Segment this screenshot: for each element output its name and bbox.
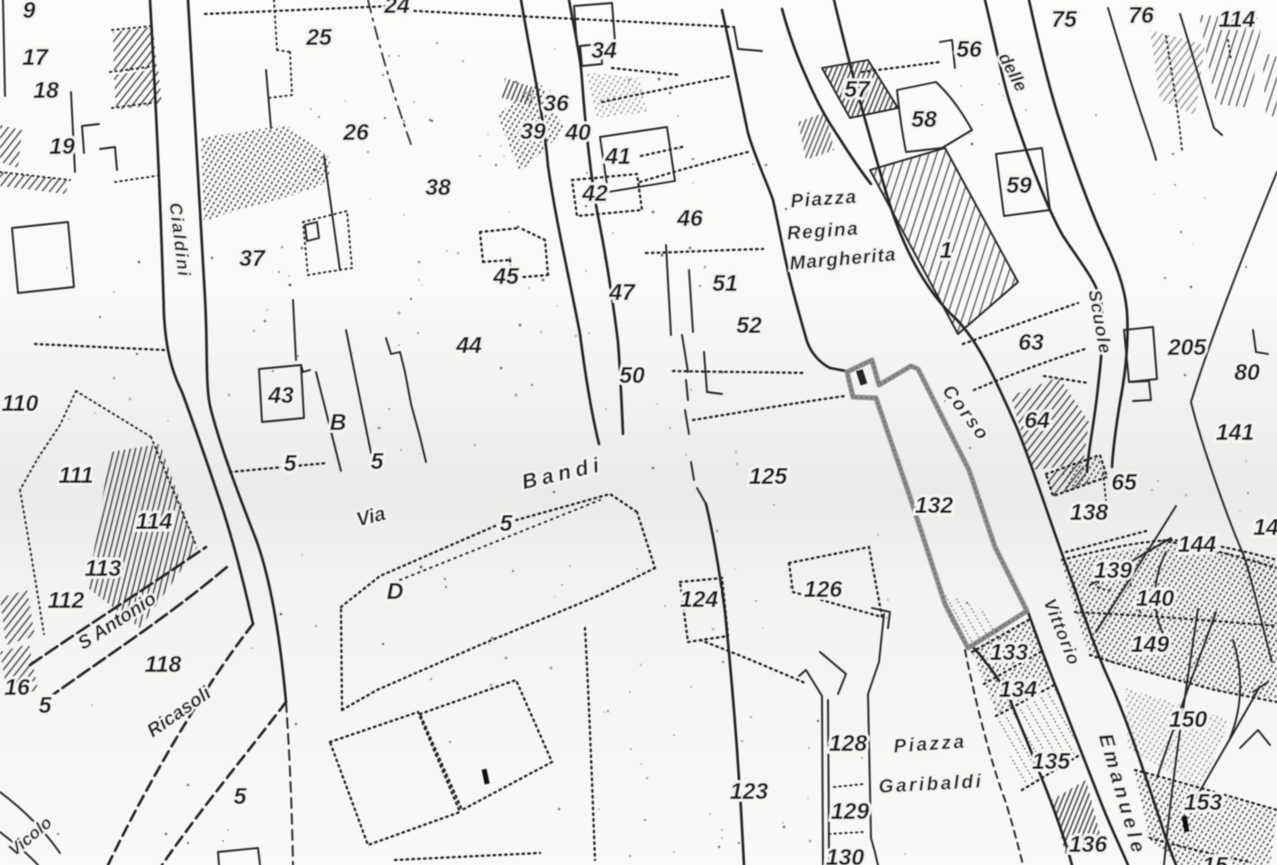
svg-text:140: 140: [1136, 585, 1175, 611]
svg-text:76: 76: [1128, 2, 1154, 28]
svg-text:135: 135: [1032, 748, 1072, 774]
svg-text:42: 42: [581, 180, 608, 206]
svg-text:58: 58: [911, 106, 937, 132]
svg-text:18: 18: [33, 77, 59, 103]
svg-text:5: 5: [234, 783, 248, 809]
svg-text:149: 149: [1131, 631, 1170, 657]
svg-text:113: 113: [85, 555, 122, 581]
svg-text:57: 57: [844, 76, 871, 102]
svg-text:153: 153: [1184, 789, 1223, 815]
svg-text:45: 45: [492, 263, 520, 289]
svg-text:15: 15: [1202, 852, 1229, 865]
svg-text:111: 111: [59, 462, 94, 488]
svg-text:36: 36: [543, 90, 569, 116]
svg-text:80: 80: [1234, 359, 1260, 385]
svg-text:38: 38: [425, 174, 451, 200]
svg-text:130: 130: [826, 844, 865, 865]
svg-text:63: 63: [1018, 329, 1044, 355]
svg-text:125: 125: [749, 463, 789, 489]
svg-text:37: 37: [239, 245, 266, 271]
svg-text:129: 129: [831, 798, 870, 824]
svg-text:136: 136: [1069, 831, 1108, 857]
svg-text:1: 1: [940, 237, 953, 263]
svg-text:132: 132: [915, 492, 954, 518]
svg-text:134: 134: [999, 676, 1038, 702]
svg-text:39: 39: [520, 118, 546, 144]
svg-text:110: 110: [2, 390, 39, 416]
svg-text:75: 75: [1051, 6, 1078, 32]
svg-text:17: 17: [22, 44, 49, 70]
svg-text:126: 126: [804, 576, 843, 602]
svg-text:B: B: [330, 409, 347, 435]
svg-text:41: 41: [604, 143, 631, 169]
svg-text:D: D: [387, 578, 404, 604]
svg-text:5: 5: [371, 448, 385, 474]
svg-text:128: 128: [829, 730, 868, 756]
svg-text:24: 24: [383, 0, 410, 18]
svg-text:25: 25: [305, 24, 333, 50]
svg-text:123: 123: [730, 778, 769, 804]
svg-text:47: 47: [608, 279, 636, 305]
svg-text:205: 205: [1167, 334, 1208, 360]
svg-text:112: 112: [48, 587, 85, 613]
svg-text:5: 5: [39, 692, 53, 718]
svg-text:50: 50: [619, 362, 645, 388]
svg-text:114: 114: [136, 508, 173, 534]
svg-text:139: 139: [1094, 557, 1133, 583]
svg-text:65: 65: [1111, 469, 1138, 495]
svg-text:59: 59: [1006, 172, 1032, 198]
svg-text:118: 118: [145, 651, 182, 677]
svg-text:144: 144: [1178, 531, 1217, 557]
svg-text:64: 64: [1024, 407, 1050, 433]
svg-text:141: 141: [1216, 419, 1254, 445]
svg-text:133: 133: [990, 639, 1029, 665]
svg-text:19: 19: [49, 133, 75, 159]
svg-text:51: 51: [712, 270, 738, 296]
svg-text:5: 5: [500, 510, 514, 536]
svg-text:34: 34: [591, 37, 617, 63]
svg-text:43: 43: [267, 382, 294, 408]
svg-text:14: 14: [1253, 514, 1277, 540]
svg-text:5: 5: [284, 450, 298, 476]
svg-text:44: 44: [455, 332, 482, 358]
svg-text:138: 138: [1070, 499, 1109, 525]
svg-text:26: 26: [342, 119, 369, 145]
svg-text:56: 56: [956, 36, 982, 62]
svg-text:40: 40: [564, 119, 591, 145]
svg-text:114: 114: [1219, 6, 1256, 32]
svg-text:16: 16: [4, 674, 30, 700]
svg-text:52: 52: [736, 312, 762, 338]
svg-text:150: 150: [1169, 706, 1208, 732]
svg-text:9: 9: [23, 0, 36, 23]
svg-text:46: 46: [676, 205, 703, 231]
svg-text:124: 124: [680, 586, 719, 612]
